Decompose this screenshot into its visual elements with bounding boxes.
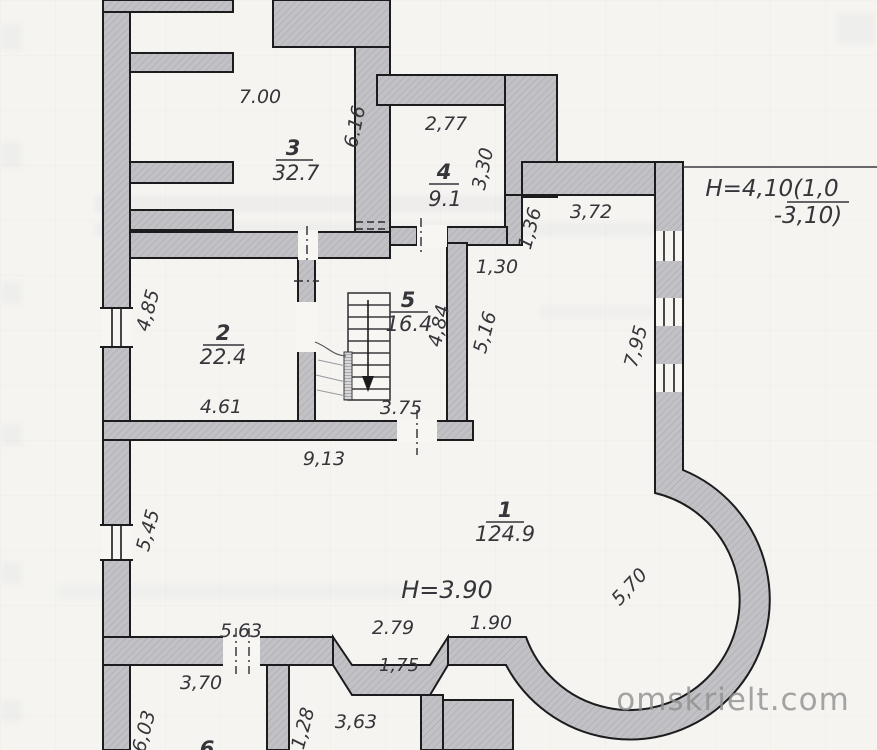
dim-room6-width: 3,70 [180, 672, 222, 694]
room1-area: 124.9 [475, 522, 535, 546]
height-room1: H=3.90 [401, 576, 493, 604]
wall-fin-room3-1 [130, 53, 233, 72]
room4-area: 9.1 [428, 187, 461, 211]
room6-number: 6 [200, 737, 215, 750]
dim-bottom-wall-left: 5.63 [220, 620, 262, 642]
dim-room4-width: 2,77 [425, 113, 467, 135]
dim-room5-width: 3.75 [380, 397, 422, 419]
dim-top-wall-right: 3,72 [570, 201, 612, 223]
height-upper-line1: H=4,10(1,0 [705, 176, 838, 202]
room5-number: 5 [401, 288, 416, 312]
dim-room3-width: 7.00 [239, 86, 281, 108]
room1-number: 1 [498, 498, 513, 522]
dim-bottom-step: 1,75 [379, 655, 419, 676]
room3-number: 3 [286, 136, 301, 160]
watermark-text: omskrielt.com [616, 682, 850, 718]
wall-top-block [273, 0, 390, 47]
room3-area: 32.7 [273, 161, 320, 185]
height-upper-line2: -3,10) [774, 203, 842, 229]
room2-area: 22.4 [200, 345, 247, 369]
wall-bottom-block [443, 700, 513, 750]
dim-hall-width: 9,13 [303, 448, 345, 470]
door-room2 [296, 302, 317, 352]
door-room3-hall [298, 230, 318, 260]
window-right-2 [654, 296, 685, 328]
window-left-upper [100, 308, 133, 347]
wall-bottom-left [103, 637, 333, 665]
stair-wall-stub [344, 352, 352, 400]
dim-room2-width: 4.61 [200, 396, 242, 418]
wall-fin-room3-2 [130, 162, 233, 183]
room2-number: 2 [216, 321, 231, 345]
dim-bottom-wall-mid: 2.79 [372, 617, 414, 639]
room4-number: 4 [436, 160, 452, 184]
wall-room4-top [377, 75, 507, 105]
window-right-1 [654, 229, 685, 263]
wall-room4-bottom-left [390, 227, 417, 245]
dim-seg-1-30: 1,30 [476, 256, 518, 278]
wall-room6-right [267, 665, 289, 750]
floor-plan-canvas: 1 124.9 2 22.4 3 32.7 4 9.1 5 16.4 6 7.0… [0, 0, 877, 750]
scanned-floor-plan-sheet: 1 124.9 2 22.4 3 32.7 4 9.1 5 16.4 6 7.0… [0, 0, 877, 750]
window-right-3 [654, 362, 685, 394]
wall-room7-right [421, 695, 443, 750]
wall-hall-right [447, 243, 467, 423]
dim-bottom-wall-right: 1.90 [470, 612, 512, 634]
room5-area: 16.4 [386, 312, 433, 336]
dim-room7-width: 3,63 [335, 711, 377, 733]
wall-top-left [103, 0, 233, 12]
window-left-lower [100, 525, 133, 560]
wall-fin-room3-3 [130, 210, 233, 230]
wall-room3-bottom [130, 232, 390, 258]
